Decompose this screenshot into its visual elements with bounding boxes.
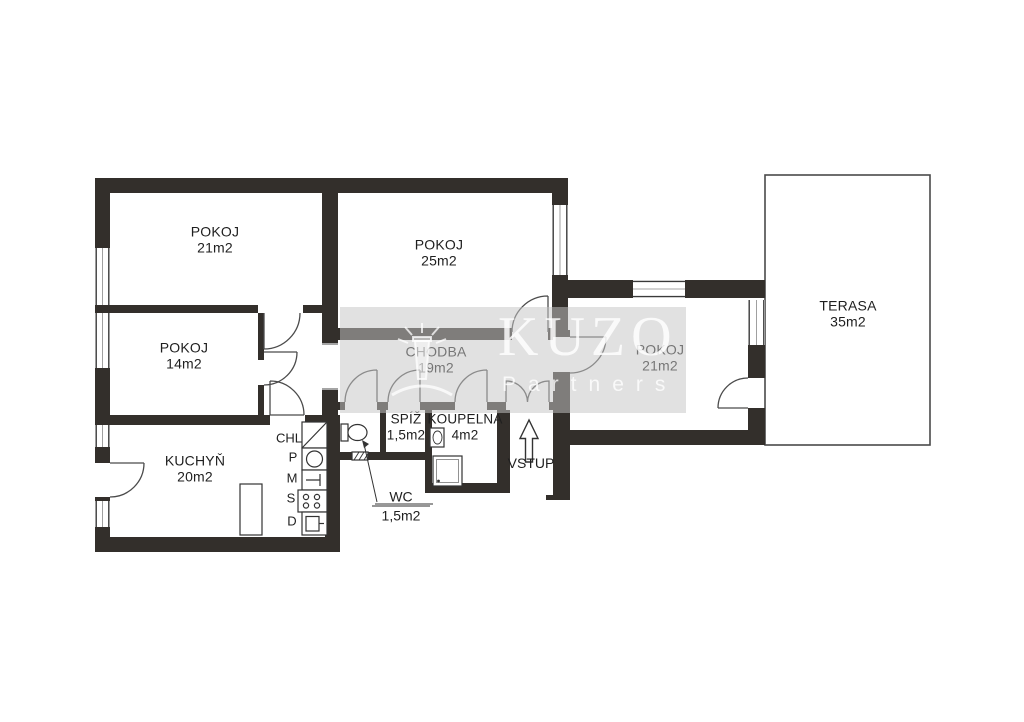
room-name: POKOJ xyxy=(160,341,208,357)
wall xyxy=(487,402,506,410)
room-label-pokoj-east: POKOJ 21m2 xyxy=(636,343,684,374)
label-underline xyxy=(372,506,430,507)
sink-unit-icon xyxy=(302,470,327,490)
room-name: KOUPELNA xyxy=(427,412,502,428)
scanned-floor-plan-page: POKOJ 21m2 POKOJ 25m2 POKOJ 14m2 CHODBA … xyxy=(0,0,1024,722)
room-label-chodba: CHODBA 19m2 xyxy=(405,345,466,376)
room-label-pokoj-mid-left: POKOJ 14m2 xyxy=(160,341,208,372)
room-name: WC xyxy=(372,489,430,505)
door-swing xyxy=(512,296,548,332)
wall xyxy=(570,430,765,445)
wall xyxy=(377,402,388,410)
wall xyxy=(546,495,558,500)
kitchen-column xyxy=(240,484,262,535)
room-area: 4m2 xyxy=(427,427,502,443)
window xyxy=(748,300,765,345)
wall xyxy=(553,280,633,298)
wall xyxy=(95,497,110,501)
wall xyxy=(258,415,270,425)
door-swing xyxy=(264,352,297,385)
window xyxy=(633,280,685,298)
wall xyxy=(380,410,386,452)
room-label-terasa: TERASA 35m2 xyxy=(819,299,876,330)
room-name: POKOJ xyxy=(415,238,463,254)
wall xyxy=(95,447,110,463)
appliance-letter-d: D xyxy=(287,514,296,529)
entrance-label: VSTUP xyxy=(508,455,555,471)
door-swing xyxy=(345,370,377,402)
wall xyxy=(748,408,765,445)
room-area: 35m2 xyxy=(819,314,876,330)
entrance-double-door xyxy=(506,381,549,402)
window xyxy=(95,313,110,368)
window xyxy=(95,425,110,447)
stove-icon xyxy=(298,490,327,512)
room-name: TERASA xyxy=(819,299,876,315)
wall xyxy=(338,328,512,340)
door-swing xyxy=(270,381,304,415)
room-name: POKOJ xyxy=(636,343,684,359)
window xyxy=(552,205,568,275)
door-swing xyxy=(264,313,300,349)
wall xyxy=(95,193,110,248)
appliance-letter-m: M xyxy=(287,471,298,486)
wall xyxy=(748,345,765,378)
floor-plan-drawing xyxy=(0,0,1024,722)
wall xyxy=(258,385,264,415)
room-name: CHODBA xyxy=(405,345,466,361)
window xyxy=(95,501,110,527)
wall xyxy=(420,402,455,410)
room-label-wc: WC 1,5m2 xyxy=(372,489,430,524)
room-area: 1,5m2 xyxy=(372,508,430,524)
window xyxy=(95,248,110,305)
room-area: 14m2 xyxy=(160,356,208,372)
room-name: POKOJ xyxy=(191,225,239,241)
wall xyxy=(685,280,765,298)
wall xyxy=(110,415,258,425)
door-swing xyxy=(110,463,144,497)
door-swing xyxy=(718,378,748,408)
wall xyxy=(95,368,110,425)
wall xyxy=(110,305,258,313)
fridge-label: CHL xyxy=(276,431,302,446)
wall xyxy=(553,372,570,500)
wall xyxy=(258,313,264,360)
room-name: KUCHYŇ xyxy=(165,454,225,470)
room-label-pokoj-top-mid: POKOJ 25m2 xyxy=(415,238,463,269)
wall xyxy=(330,452,430,460)
opening-jamb xyxy=(322,344,338,389)
wall xyxy=(95,178,568,193)
room-area: 21m2 xyxy=(636,358,684,374)
appliance-letter-s: S xyxy=(287,491,296,506)
room-area: 25m2 xyxy=(415,253,463,269)
wall xyxy=(552,193,568,205)
room-area: 21m2 xyxy=(191,240,239,256)
wall xyxy=(303,305,322,313)
appliance-letter-p: P xyxy=(289,450,298,465)
room-name: SPÍŽ xyxy=(387,412,426,428)
wall xyxy=(330,402,345,410)
shower-icon xyxy=(433,456,462,486)
toilet-icon xyxy=(341,424,367,441)
washer-icon xyxy=(302,448,327,470)
fridge-icon xyxy=(302,422,327,448)
room-label-kuchyn: KUCHYŇ 20m2 xyxy=(165,454,225,485)
room-label-koupelna: KOUPELNA 4m2 xyxy=(427,412,502,443)
room-area: 1,5m2 xyxy=(387,427,426,443)
door-swing xyxy=(570,337,606,373)
wall xyxy=(95,305,110,313)
room-label-pokoj-top-left: POKOJ 21m2 xyxy=(191,225,239,256)
room-area: 19m2 xyxy=(405,360,466,376)
wall xyxy=(553,330,570,337)
wall xyxy=(330,410,337,452)
wall xyxy=(549,402,553,410)
wall xyxy=(95,537,340,552)
room-label-spiz: SPÍŽ 1,5m2 xyxy=(387,412,426,443)
dishwasher-icon xyxy=(302,512,327,535)
wall xyxy=(322,193,338,343)
room-area: 20m2 xyxy=(165,469,225,485)
